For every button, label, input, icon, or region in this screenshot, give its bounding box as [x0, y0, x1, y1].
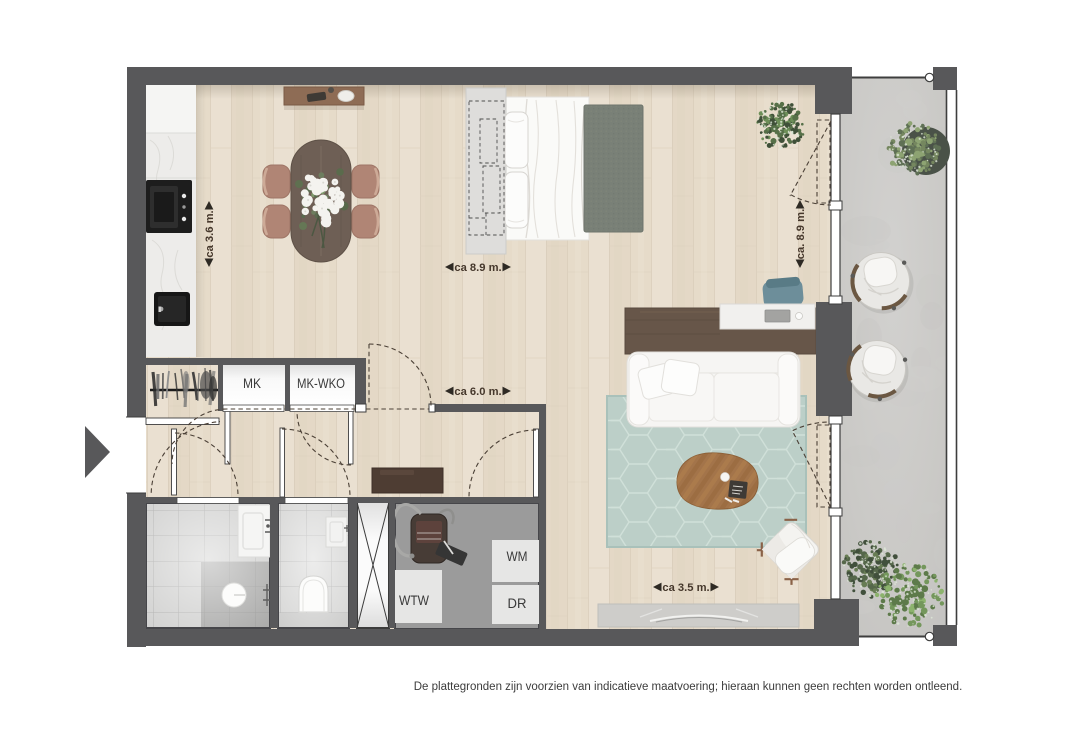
- svg-text:ca 3.5 m.: ca 3.5 m.: [662, 582, 709, 594]
- svg-text:WTW: WTW: [399, 592, 430, 608]
- svg-text:MK-WKO: MK-WKO: [297, 376, 345, 391]
- svg-text:ca 3.6 m.: ca 3.6 m.: [204, 210, 216, 257]
- svg-text:DR: DR: [508, 595, 527, 611]
- svg-text:ca 8.9 m.: ca 8.9 m.: [454, 262, 501, 274]
- svg-text:ca. 8.9 m.: ca. 8.9 m.: [795, 209, 807, 259]
- svg-text:De plattegronden zijn voorzien: De plattegronden zijn voorzien van indic…: [414, 681, 963, 693]
- svg-text:MK: MK: [243, 376, 261, 391]
- svg-text:WM: WM: [507, 548, 528, 564]
- svg-text:ca 6.0 m.: ca 6.0 m.: [454, 386, 501, 398]
